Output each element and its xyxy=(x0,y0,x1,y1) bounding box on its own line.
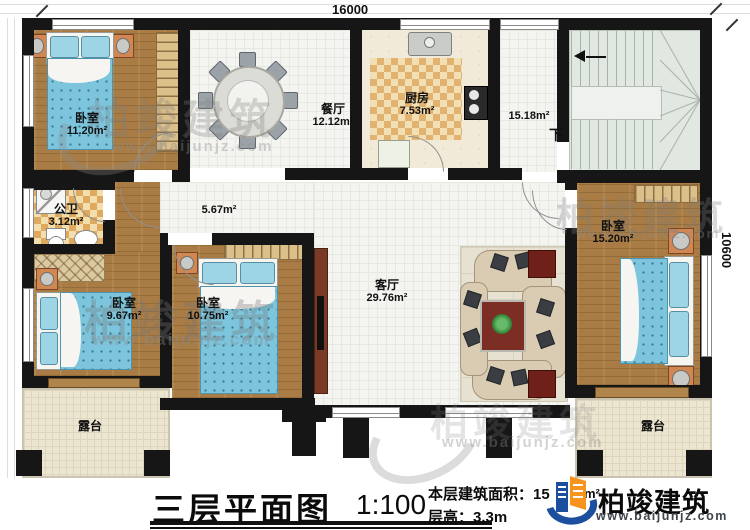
exterior-line xyxy=(0,4,750,5)
stair-winders xyxy=(660,30,700,170)
wall xyxy=(350,18,362,180)
pillow xyxy=(669,262,689,308)
room-label-living: 客厅 29.76m² xyxy=(352,279,422,305)
pillow xyxy=(240,262,275,284)
sliding-door xyxy=(48,378,140,388)
pillar xyxy=(292,422,316,456)
window xyxy=(23,55,34,127)
logo-mark-icon xyxy=(536,472,598,528)
room-label-terrace-r: 露台 xyxy=(625,420,681,433)
room-label-bathroom: 公卫 3.12m² xyxy=(38,203,94,229)
floor-height-text: 层高：3.3m xyxy=(428,506,507,527)
stair-direction-arrow xyxy=(586,56,606,58)
watermark-url: www.baijunjz.com xyxy=(92,330,271,350)
window xyxy=(701,255,712,357)
pillow xyxy=(40,297,58,330)
exterior-line xyxy=(0,13,750,14)
wall xyxy=(565,228,577,385)
room-label-bedroom-bl: 卧室 9.67m² xyxy=(94,297,154,323)
exterior-line xyxy=(14,18,15,478)
stair-flight-down xyxy=(571,119,660,169)
stair-down-label: 下 xyxy=(546,128,566,144)
window xyxy=(52,19,134,30)
terrace-post xyxy=(144,450,170,476)
wall xyxy=(557,18,569,142)
pillow xyxy=(40,332,58,365)
dining-chair xyxy=(283,92,298,109)
pillar xyxy=(282,410,326,422)
dimension-top: 16000 xyxy=(332,2,368,17)
wall xyxy=(350,168,408,180)
wall xyxy=(212,233,310,245)
pillow xyxy=(669,311,689,357)
stair-arrow-head xyxy=(574,50,585,62)
watermark-url: www.baijunjz.com xyxy=(442,434,603,451)
window xyxy=(400,19,490,30)
pillow xyxy=(50,36,79,58)
logo-brand-url: www.baijunjz.com xyxy=(596,509,728,523)
terrace-post xyxy=(686,450,712,476)
floor-area-text: 本层建筑面积：15 xyxy=(428,483,550,504)
wall xyxy=(448,168,522,180)
sliding-door xyxy=(595,387,689,398)
room-label-stair-hall: 15.18m² xyxy=(496,110,562,122)
dining-chair xyxy=(239,52,256,67)
window xyxy=(23,188,34,238)
plan-scale: 1:100 xyxy=(356,489,426,521)
room-label-hallway: 5.67m² xyxy=(188,204,250,216)
wall xyxy=(103,178,115,188)
wall xyxy=(488,18,500,180)
wall xyxy=(160,398,315,410)
room-label-kitchen: 厨房 7.53m² xyxy=(386,92,448,118)
exterior-line xyxy=(7,18,8,478)
coffee-table-plant xyxy=(492,314,512,334)
nightstand xyxy=(112,34,134,58)
window xyxy=(500,19,559,30)
room-label-dining: 餐厅 12.12m² xyxy=(298,103,368,129)
window xyxy=(23,288,34,362)
break-mark xyxy=(36,5,49,18)
watermark-url: www.baijunjz.com xyxy=(112,138,273,155)
room-label-bedroom-r: 卧室 15.20m² xyxy=(580,220,646,246)
stove-burner xyxy=(469,90,479,100)
nightstand xyxy=(36,268,58,290)
room-floor-stair-hall xyxy=(500,30,557,172)
floor-plan-canvas: 柏竣建筑 www.baijunjz.com 柏竣建筑 www.baijunjz.… xyxy=(0,0,750,530)
tv xyxy=(317,296,324,350)
wall xyxy=(22,244,115,254)
stove-burner xyxy=(469,104,479,114)
wall xyxy=(557,170,712,183)
fridge xyxy=(378,140,410,168)
wall xyxy=(172,170,190,182)
sofa-cushion xyxy=(511,369,529,387)
room-label-bedroom-tl: 卧室 11.20m² xyxy=(56,112,118,138)
dimension-right: 10600 xyxy=(719,232,734,268)
break-mark xyxy=(726,19,739,32)
wall xyxy=(160,233,168,245)
stair-landing xyxy=(571,86,662,120)
room-label-terrace-l: 露台 xyxy=(62,420,118,433)
room-label-bedroom-bm: 卧室 10.75m² xyxy=(178,297,238,323)
side-table xyxy=(528,250,556,278)
wall xyxy=(302,233,314,410)
terrace-post xyxy=(16,450,42,476)
kitchen-sink-faucet xyxy=(424,37,435,48)
pillow xyxy=(81,36,110,58)
title-underline xyxy=(150,527,492,529)
pillar xyxy=(343,418,369,458)
